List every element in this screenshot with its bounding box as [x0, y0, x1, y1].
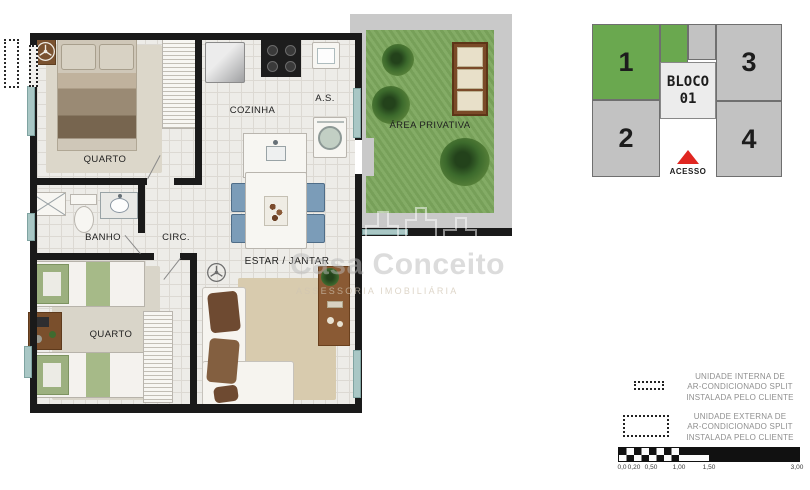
window-bedroom1	[27, 86, 35, 136]
unit-number: 2	[618, 123, 633, 154]
bed-blanket	[86, 262, 110, 306]
fridge	[205, 42, 245, 83]
garden-bench	[452, 42, 488, 116]
room-label-as: A.S.	[303, 94, 347, 104]
laundry-tank	[312, 42, 340, 69]
sideboard-plant	[321, 268, 339, 286]
sideboard-item	[327, 317, 334, 324]
sliding-door-garden	[362, 229, 408, 235]
washing-machine	[313, 117, 347, 158]
sideboard	[318, 266, 350, 346]
desk-plant	[49, 331, 56, 338]
room-label-circ: CIRC.	[148, 233, 204, 243]
bench-cushion	[457, 91, 483, 111]
pillow-inner	[43, 272, 61, 296]
legend-line: AR-CONDICIONADO SPLIT	[670, 422, 810, 432]
key-plan-unit-2: 2	[592, 100, 660, 177]
bed-blanket	[86, 353, 110, 397]
bathroom-sink	[100, 192, 138, 219]
unit-number: 1	[618, 47, 633, 78]
burner	[267, 45, 278, 56]
key-plan-unit-1: 1	[592, 24, 660, 100]
internal-ac-legend-icon	[634, 381, 664, 390]
scale-label: 3,00	[791, 464, 804, 471]
bed-blanket	[58, 73, 136, 150]
tank-basin	[317, 48, 335, 64]
exterior-step	[362, 138, 374, 176]
pillow	[61, 44, 96, 70]
window-bath	[27, 213, 35, 241]
legend: UNIDADE INTERNA DE AR-CONDICIONADO SPLIT…	[620, 372, 810, 444]
ceiling-fan-icon	[35, 41, 56, 62]
legend-external-ac-text: UNIDADE EXTERNA DE AR-CONDICIONADO SPLIT…	[670, 412, 810, 443]
legend-internal-ac-text: UNIDADE INTERNA DE AR-CONDICIONADO SPLIT…	[670, 372, 810, 403]
room-label-banho: BANHO	[70, 233, 136, 243]
pillow-inner	[43, 363, 61, 387]
room-label-area-privativa: ÁREA PRIVATIVA	[368, 121, 492, 131]
room-label-cozinha: COZINHA	[215, 106, 290, 116]
window-bedroom2	[24, 346, 32, 378]
external-ac-legend-icon	[623, 415, 669, 437]
scale-checker-bottom	[619, 455, 679, 462]
access-label: ACESSO	[648, 167, 728, 176]
key-plan-mid-gray	[688, 24, 716, 60]
washer-panel	[317, 121, 344, 123]
key-plan-block-box: BLOCO 01	[660, 62, 716, 119]
legend-line: AR-CONDICIONADO SPLIT	[670, 382, 810, 392]
wall-bottom	[30, 404, 362, 413]
sink-basin	[266, 146, 286, 161]
bench-cushion	[457, 47, 483, 67]
faucet	[273, 140, 278, 145]
wall-bath-right	[138, 185, 145, 233]
pillow	[99, 44, 134, 70]
scale-seg-bottom	[679, 455, 709, 462]
stove	[261, 40, 301, 77]
sofa-pillow	[213, 384, 239, 403]
scale-label: 1,50	[703, 464, 716, 471]
unit-number: 3	[741, 47, 756, 78]
wall-bedroom2-top-a	[30, 253, 154, 260]
block-label-line2: 01	[680, 91, 697, 107]
burner	[285, 61, 296, 72]
toilet-bowl	[74, 206, 94, 233]
faucet	[118, 194, 122, 198]
legend-line: INSTALADA PELO CLIENTE	[670, 433, 810, 443]
plant-icon	[382, 44, 414, 76]
washer-door	[318, 126, 342, 150]
single-bed-bottom	[33, 352, 145, 398]
legend-line: UNIDADE INTERNA DE	[670, 372, 810, 382]
scale-label: 1,00	[673, 464, 686, 471]
single-bed-top	[33, 261, 145, 307]
wall-bedroom1-kitchen	[195, 33, 202, 185]
bench-cushion	[457, 69, 483, 89]
window-service	[353, 88, 361, 138]
sink-oval	[110, 198, 129, 213]
burner	[267, 61, 278, 72]
unit-number: 4	[741, 124, 756, 155]
window-living	[353, 350, 361, 398]
floor-plan-page: ÁREA PRIVATIVA	[0, 0, 810, 490]
double-bed	[57, 39, 137, 151]
room-label-quarto1: QUARTO	[60, 155, 150, 165]
table-centerpiece	[264, 196, 288, 226]
scale-label: 0,20	[628, 464, 641, 471]
sofa-pillow	[207, 291, 241, 334]
room-label-estar-jantar: ESTAR / JANTAR	[228, 257, 346, 267]
sofa-pillow	[206, 338, 240, 384]
key-plan: 1 2 3 4 BLOCO 01 ACESSO	[592, 24, 782, 180]
key-plan-unit-3: 3	[716, 24, 782, 101]
dining-table	[245, 172, 307, 249]
door-opening	[355, 140, 362, 174]
toilet	[70, 194, 97, 234]
wardrobe	[143, 311, 173, 403]
key-plan-unit-4: 4	[716, 101, 782, 177]
sideboard-tray	[327, 301, 343, 308]
scale-seg-solid	[709, 448, 799, 461]
external-ac-unit	[4, 39, 19, 88]
toilet-tank	[70, 194, 97, 205]
plant-icon	[372, 86, 410, 124]
legend-line: UNIDADE EXTERNA DE	[670, 412, 810, 422]
plant-icon	[440, 138, 490, 186]
key-plan-mid-green	[660, 24, 688, 63]
sideboard-item	[337, 321, 343, 327]
access-triangle-icon	[677, 150, 699, 164]
legend-line: INSTALADA PELO CLIENTE	[670, 393, 810, 403]
desk-item	[37, 317, 49, 327]
wall-bedroom1-bottom-b	[174, 178, 202, 185]
ceiling-fan-icon	[206, 262, 227, 283]
room-label-quarto2: QUARTO	[68, 330, 154, 340]
wall-bedroom2-living	[190, 253, 197, 404]
scale-label: 0,0	[617, 464, 626, 471]
scale-bar-graphic	[619, 448, 799, 461]
scale-bar: 0,0 0,20 0,50 1,00 1,50 3,00	[619, 448, 800, 472]
wardrobe	[162, 39, 196, 129]
sofa	[202, 287, 294, 406]
burner	[285, 45, 296, 56]
internal-ac-unit	[29, 45, 38, 87]
block-label-line1: BLOCO	[667, 74, 709, 90]
scale-label: 0,50	[645, 464, 658, 471]
wall-bedroom1-bottom-a	[30, 178, 147, 185]
